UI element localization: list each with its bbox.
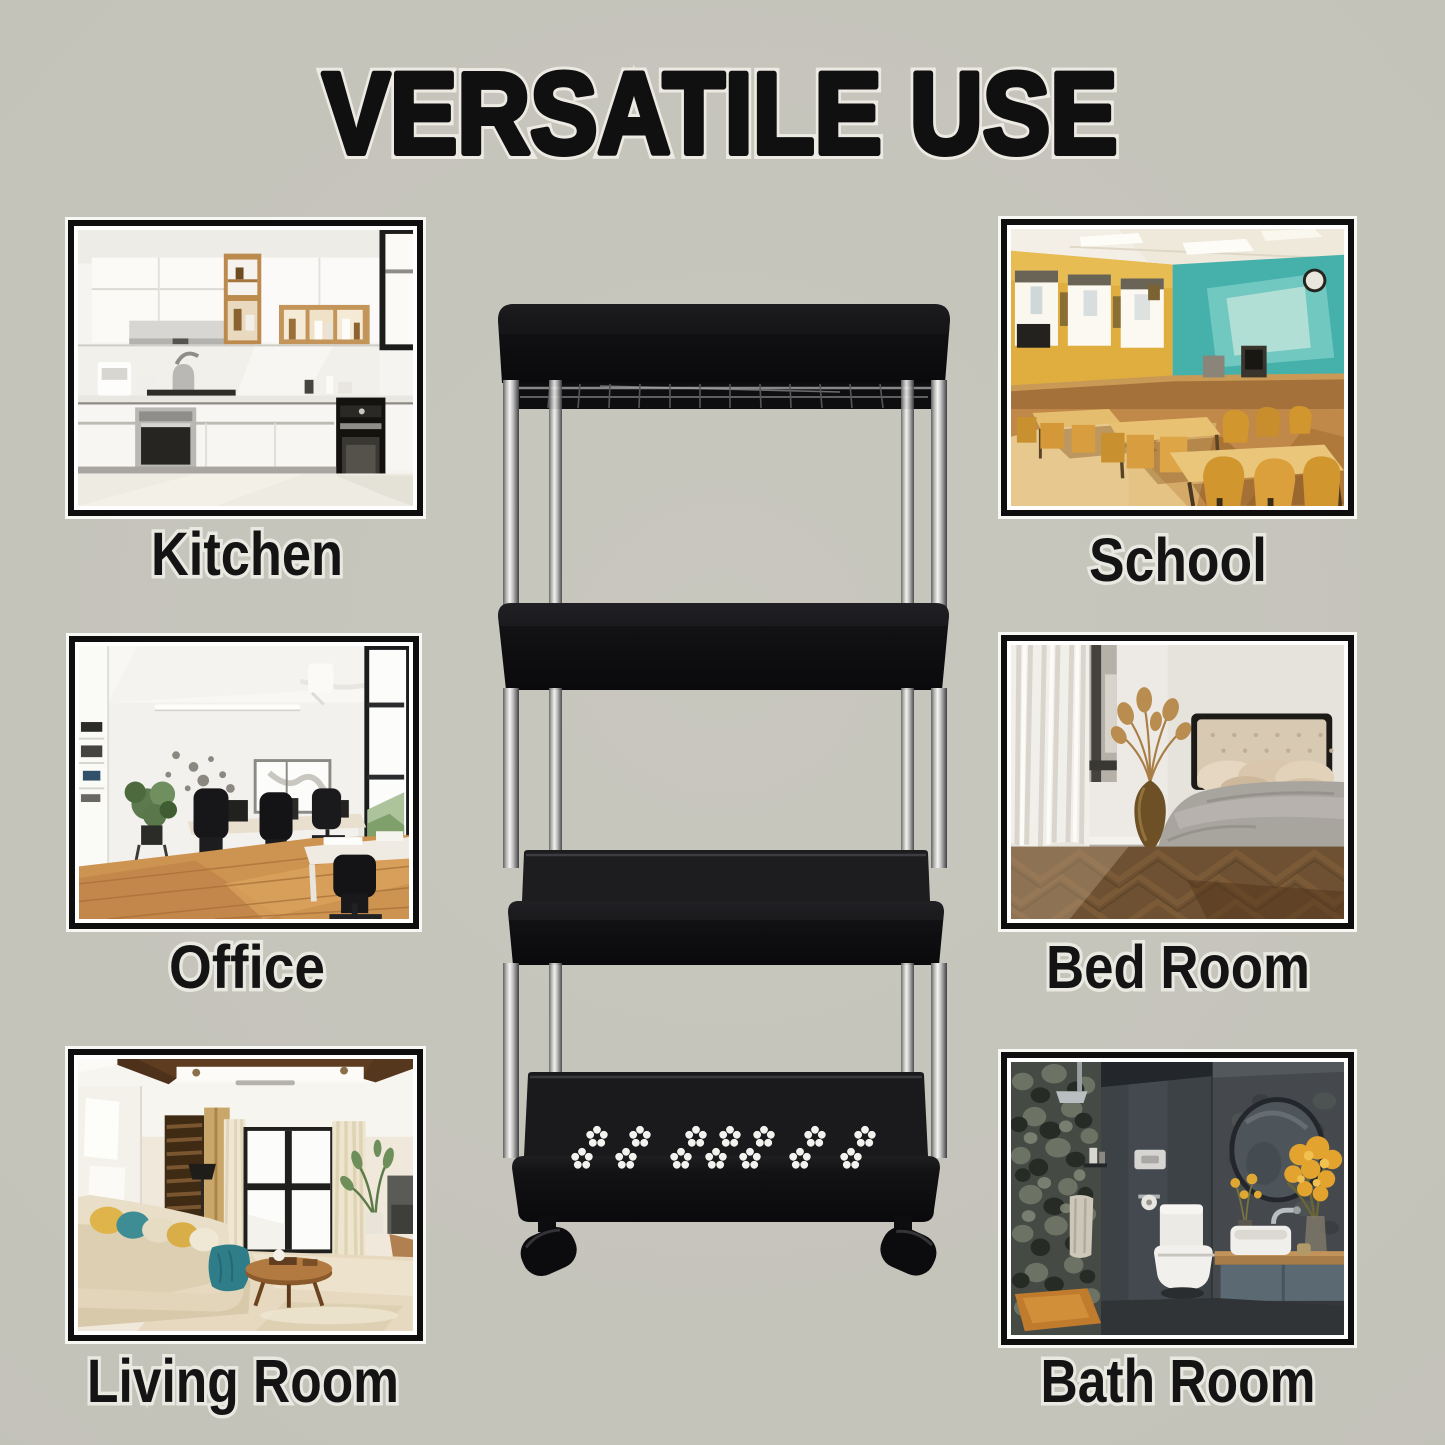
svg-text:Living Room: Living Room	[87, 1347, 399, 1415]
svg-text:School: School	[1089, 526, 1267, 594]
svg-text:Living Room: Living Room	[87, 1347, 399, 1415]
svg-text:Kitchen: Kitchen	[151, 520, 343, 588]
svg-text:Bed Room: Bed Room	[1046, 933, 1310, 1001]
svg-text:Bed Room: Bed Room	[1046, 933, 1310, 1001]
svg-text:VERSATILE USE: VERSATILE USE	[323, 50, 1118, 178]
svg-text:Kitchen: Kitchen	[151, 520, 343, 588]
svg-text:Office: Office	[169, 933, 325, 1001]
svg-text:Bath Room: Bath Room	[1041, 1347, 1316, 1415]
svg-text:Office: Office	[169, 933, 325, 1001]
svg-text:VERSATILE USE: VERSATILE USE	[323, 50, 1118, 178]
svg-text:Bath Room: Bath Room	[1041, 1347, 1316, 1415]
svg-text:School: School	[1089, 526, 1267, 594]
